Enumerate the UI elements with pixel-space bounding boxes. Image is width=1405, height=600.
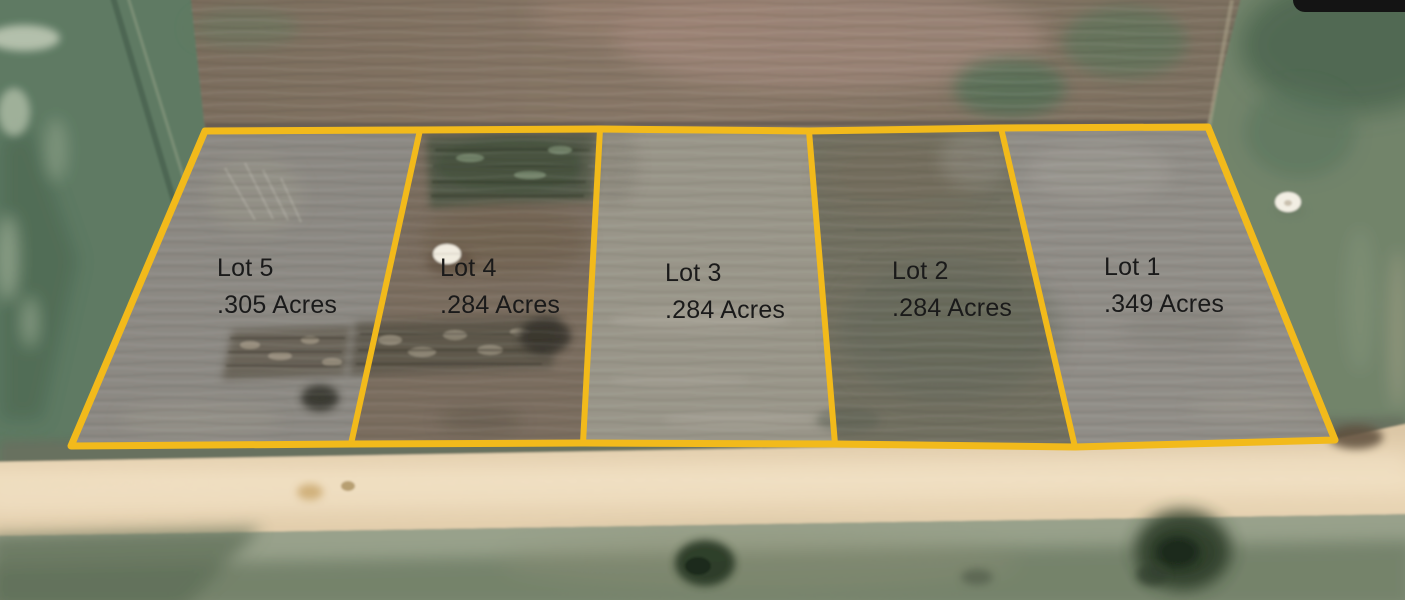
lot-2-acreage: .284 Acres: [892, 290, 1012, 327]
dry-grass-tint: [498, 534, 1022, 590]
road-spot: [341, 481, 355, 491]
lot-1-name: Lot 1: [1104, 249, 1224, 286]
ground-scar: [45, 118, 67, 182]
grass-streak: [1345, 228, 1375, 372]
road-spot: [297, 484, 323, 500]
tree: [1135, 510, 1231, 590]
lot-1-label: Lot 1 .349 Acres: [1104, 249, 1224, 323]
lot-5-label: Lot 5 .305 Acres: [217, 250, 337, 324]
lot-1-acreage: .349 Acres: [1104, 286, 1224, 323]
grass-blotch: [961, 569, 993, 585]
dark-grass-patch: [1244, 86, 1356, 178]
lot-3-name: Lot 3: [665, 255, 785, 292]
tree: [675, 540, 735, 586]
plow-rows: [190, 0, 1250, 135]
lot-4-label: Lot 4 .284 Acres: [440, 250, 560, 324]
lot-3-label: Lot 3 .284 Acres: [665, 255, 785, 329]
lot-2-label: Lot 2 .284 Acres: [892, 253, 1012, 327]
lot-5-name: Lot 5: [217, 250, 337, 287]
lot-5-acreage: .305 Acres: [217, 287, 337, 324]
lot-2-name: Lot 2: [892, 253, 1012, 290]
aerial-lot-map: Lot 5 .305 Acres Lot 4 .284 Acres Lot 3 …: [0, 0, 1405, 600]
lot-3-acreage: .284 Acres: [665, 292, 785, 329]
lot-4-acreage: .284 Acres: [440, 287, 560, 324]
ground-scar: [21, 296, 39, 348]
lot-4-name: Lot 4: [440, 250, 560, 287]
well-pad-center: [1284, 200, 1292, 206]
screen-corner-artifact: [1293, 0, 1405, 12]
